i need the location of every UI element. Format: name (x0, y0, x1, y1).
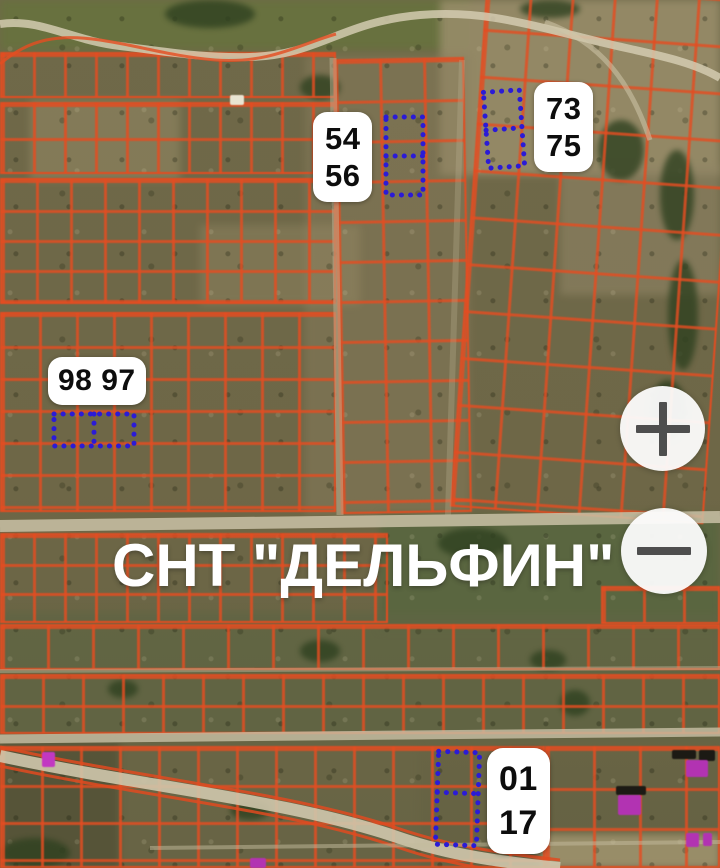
building-roof (703, 833, 712, 846)
minus-icon (637, 547, 691, 555)
map-title: СНТ "ДЕЛЬФИН" (112, 533, 632, 599)
plot-label-line: 56 (325, 157, 360, 194)
tree-patch (165, 0, 255, 28)
building-roof (616, 786, 646, 795)
plot-label-line: 73 (546, 90, 581, 127)
zoom-in-button[interactable] (620, 386, 705, 471)
map-canvas[interactable]: 54 56 73 75 98 97 01 17 СНТ "ДЕЛЬФИН" (0, 0, 720, 868)
cadastral-grid-block (0, 52, 336, 98)
plot-label-line: 75 (546, 127, 581, 164)
plot-label-98-97: 98 97 (48, 357, 146, 405)
plot-label-line: 01 (499, 757, 538, 801)
zoom-out-button[interactable] (621, 508, 707, 594)
plot-label-01-17: 01 17 (487, 748, 550, 854)
plus-icon (659, 402, 667, 456)
plot-label-73-75: 73 75 (534, 82, 593, 172)
plot-marker-54-56 (383, 114, 427, 199)
cadastral-grid-block (0, 178, 336, 304)
cadastral-grid-block (0, 624, 720, 670)
plot-label-line: 17 (499, 801, 538, 845)
building-roof (672, 750, 696, 759)
plot-label-line: 54 (325, 120, 360, 157)
building-roof (618, 795, 641, 815)
plot-marker-73-75 (483, 88, 526, 171)
building-roof (686, 833, 699, 847)
cadastral-grid-block (0, 674, 720, 734)
plot-label-54-56: 54 56 (313, 112, 372, 202)
plot-marker-01-17 (434, 749, 482, 849)
building-roof (250, 858, 266, 868)
building-roof (42, 752, 55, 767)
building-roof (686, 760, 708, 777)
cadastral-grid-block (0, 102, 336, 174)
plot-label-line: 98 97 (58, 363, 136, 399)
plot-marker-98-97 (51, 411, 138, 450)
building-roof (230, 95, 244, 105)
